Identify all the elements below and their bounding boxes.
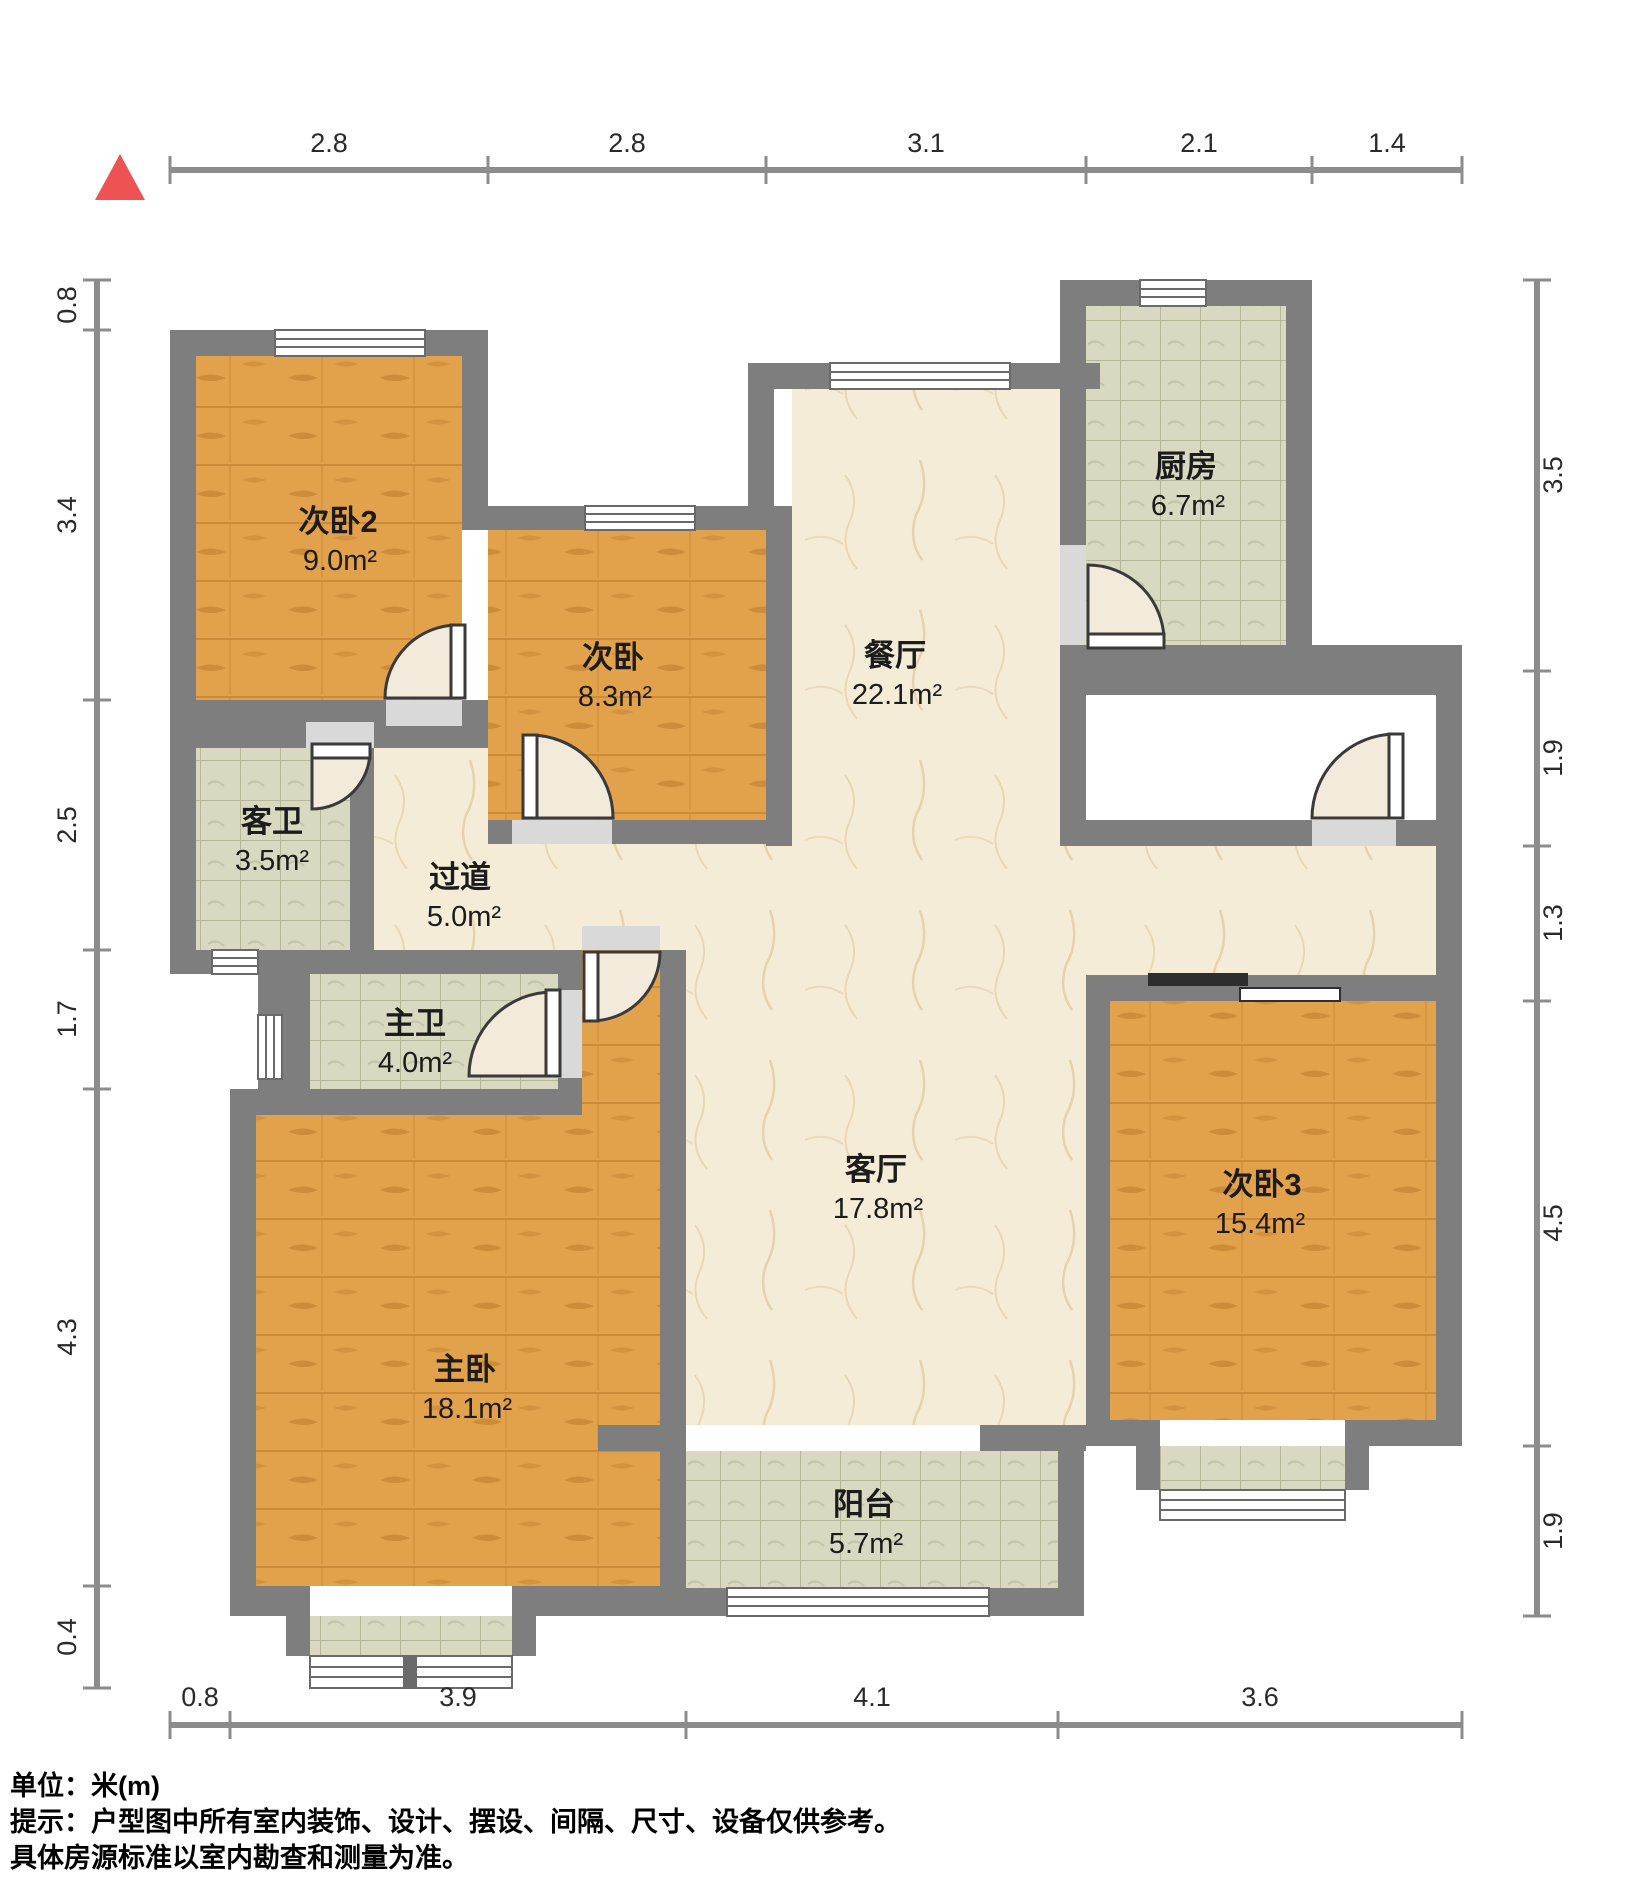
room-area-bedroom: 8.3m² — [578, 681, 652, 713]
window-guest-bathroom — [212, 950, 258, 974]
dim-label: 0.4 — [52, 1618, 82, 1656]
dim-label: 3.4 — [52, 496, 82, 534]
dimension-right: 3.5 1.9 1.3 4.5 1.9 — [1523, 280, 1568, 1616]
wall-segment — [1086, 1420, 1160, 1446]
window-balcony — [727, 1588, 989, 1616]
room-area-dining: 22.1m² — [852, 679, 943, 711]
room-label-hallway: 过道 — [429, 860, 491, 895]
room-area-balcony: 5.7m² — [829, 1528, 903, 1560]
dimension-left: 0.8 3.4 2.5 1.7 4.3 0.4 — [52, 280, 111, 1688]
wall-segment — [1060, 645, 1462, 695]
opening-bedroom2 — [386, 700, 462, 726]
dim-label: 0.8 — [52, 286, 82, 324]
opening-master-bedroom — [582, 926, 660, 950]
floor-living-main — [686, 950, 1086, 1425]
window-left-shaft — [258, 1015, 282, 1079]
wall-segment — [1345, 1446, 1369, 1490]
dim-label: 4.1 — [853, 1682, 891, 1712]
wall-segment — [1060, 306, 1086, 545]
wall-segment — [230, 1089, 256, 1616]
wall-segment — [686, 1588, 727, 1616]
dim-label: 3.6 — [1241, 1682, 1279, 1712]
wall-segment — [1286, 306, 1312, 645]
room-label-guest-bathroom: 客卫 — [241, 804, 303, 839]
room-label-dining: 餐厅 — [864, 638, 926, 673]
sliding-door-panel-dark — [1148, 973, 1248, 986]
unit-note: 单位：米(m) — [10, 1768, 901, 1804]
wall-segment — [748, 389, 774, 506]
dim-label: 1.9 — [1538, 739, 1568, 777]
footnotes: 单位：米(m) 提示：户型图中所有室内装饰、设计、摆设、间隔、尺寸、设备仅供参考… — [10, 1768, 901, 1876]
window-master-bay — [310, 1656, 512, 1688]
window-bedroom — [585, 506, 695, 530]
wall-segment — [282, 974, 310, 1089]
room-area-guest-bathroom: 3.5m² — [235, 845, 309, 877]
wall-segment — [230, 1089, 582, 1115]
dim-label: 3.9 — [439, 1682, 477, 1712]
wall-segment — [612, 820, 792, 844]
floor-entry-hall — [1086, 846, 1436, 976]
room-label-bedroom2: 次卧2 — [298, 504, 377, 539]
wall-segment — [170, 330, 196, 974]
tip-note-line2: 具体房源标准以室内勘查和测量为准。 — [10, 1840, 901, 1876]
floor-bedroom3-baywindow-sill — [1160, 1446, 1345, 1490]
room-area-bedroom2: 9.0m² — [303, 545, 377, 577]
opening-bedroom — [512, 820, 612, 844]
dim-label: 3.5 — [1538, 456, 1568, 494]
north-indicator-icon — [95, 154, 145, 200]
dim-label: 0.8 — [181, 1682, 219, 1712]
dim-label: 1.3 — [1538, 904, 1568, 942]
wall-segment — [660, 950, 686, 1616]
window-bedroom3-bay — [1160, 1490, 1345, 1520]
opening-kitchen — [1060, 545, 1086, 645]
dimension-bottom: 0.8 3.9 4.1 3.6 — [170, 1682, 1462, 1739]
wall-segment — [598, 1425, 686, 1451]
room-label-living: 客厅 — [845, 1152, 907, 1187]
wall-segment — [286, 1616, 310, 1656]
room-area-bedroom3: 15.4m² — [1215, 1208, 1306, 1240]
dim-label: 2.8 — [310, 128, 348, 158]
wall-segment — [512, 1586, 686, 1616]
room-area-master-bathroom: 4.0m² — [378, 1047, 452, 1079]
dim-label: 2.8 — [608, 128, 646, 158]
wall-segment — [230, 1586, 310, 1616]
room-label-kitchen: 厨房 — [1155, 449, 1217, 484]
dim-label: 2.5 — [52, 806, 82, 844]
room-label-bedroom: 次卧 — [582, 640, 644, 675]
wall-segment — [1086, 1001, 1110, 1420]
wall-segment — [488, 820, 512, 844]
wall-segment — [989, 1588, 1058, 1616]
window-bedroom2 — [275, 330, 425, 356]
sliding-door-panel-light — [1240, 988, 1340, 1001]
room-label-master-bathroom: 主卫 — [384, 1006, 446, 1041]
window-kitchen — [1140, 280, 1206, 306]
dim-label: 1.4 — [1368, 128, 1406, 158]
window-dining — [830, 363, 1010, 389]
wall-segment — [512, 1616, 536, 1656]
tip-note-line1: 提示：户型图中所有室内装饰、设计、摆设、间隔、尺寸、设备仅供参考。 — [10, 1804, 901, 1840]
opening-master-bathroom — [558, 990, 582, 1078]
dim-label: 4.3 — [52, 1318, 82, 1356]
room-label-balcony: 阳台 — [833, 1487, 895, 1522]
dim-label: 1.7 — [52, 1000, 82, 1038]
room-label-master-bedroom: 主卧 — [434, 1352, 496, 1387]
wall-segment — [1058, 1425, 1084, 1616]
dim-label: 1.9 — [1538, 1512, 1568, 1550]
floor-master-baywindow-sill — [310, 1616, 512, 1656]
wall-segment — [766, 530, 792, 846]
wall-segment — [1136, 1446, 1160, 1490]
floor-living-upper — [660, 846, 1086, 950]
wall-segment — [1436, 671, 1462, 1446]
wall-segment — [1060, 820, 1462, 846]
door-entry — [1312, 734, 1403, 818]
wall-segment — [1345, 1420, 1462, 1446]
room-area-hallway: 5.0m² — [427, 901, 501, 933]
floor-master-bedroom — [256, 1115, 660, 1586]
room-area-master-bedroom: 18.1m² — [422, 1393, 513, 1425]
room-label-bedroom3: 次卧3 — [1222, 1167, 1301, 1202]
room-area-living: 17.8m² — [833, 1193, 924, 1225]
dimension-top: 2.8 2.8 3.1 2.1 1.4 — [170, 128, 1462, 184]
opening-entry — [1312, 820, 1396, 846]
room-area-kitchen: 6.7m² — [1151, 490, 1225, 522]
wall-segment — [462, 330, 488, 530]
dim-label: 3.1 — [907, 128, 945, 158]
floorplan-page: 2.8 2.8 3.1 2.1 1.4 0.8 3.9 4.1 3.6 0.8 … — [0, 0, 1636, 1886]
floorplan-svg: 2.8 2.8 3.1 2.1 1.4 0.8 3.9 4.1 3.6 0.8 … — [0, 0, 1636, 1886]
dim-label: 4.5 — [1538, 1204, 1568, 1242]
dim-label: 2.1 — [1180, 128, 1218, 158]
floor-dining — [792, 389, 1086, 846]
